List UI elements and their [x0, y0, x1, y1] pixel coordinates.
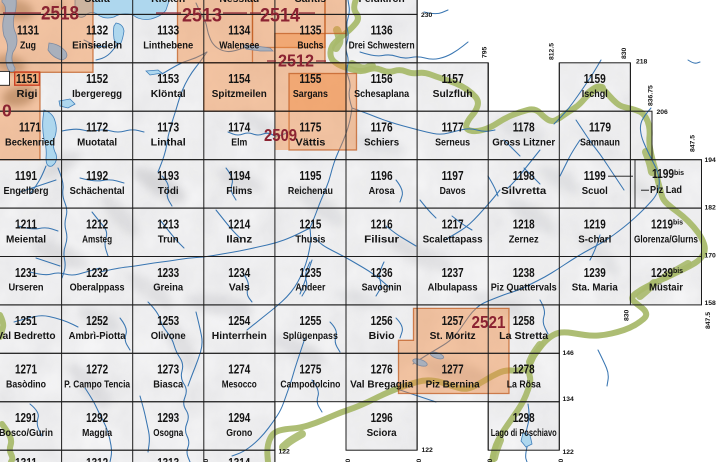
svg-text:1214: 1214: [228, 217, 250, 231]
svg-text:1313: 1313: [157, 456, 179, 462]
svg-text:Tödi: Tödi: [158, 186, 179, 197]
svg-text:1234: 1234: [228, 266, 250, 280]
svg-text:1314: 1314: [228, 456, 250, 462]
svg-text:1157: 1157: [442, 72, 464, 86]
svg-text:Biasca: Biasca: [153, 380, 183, 391]
svg-text:Müstair: Müstair: [649, 283, 683, 294]
svg-text:1233: 1233: [157, 266, 179, 280]
svg-text:1271: 1271: [15, 363, 37, 377]
svg-text:Greina: Greina: [153, 283, 183, 294]
svg-text:836.75: 836.75: [648, 85, 655, 106]
svg-text:206: 206: [657, 109, 669, 116]
svg-text:1154: 1154: [228, 72, 250, 86]
svg-text:Bosco/Gurin: Bosco/Gurin: [0, 428, 53, 439]
svg-text:Ricken: Ricken: [151, 0, 185, 5]
svg-text:1237: 1237: [442, 266, 464, 280]
svg-text:1156: 1156: [371, 72, 393, 86]
svg-text:Arosa: Arosa: [369, 186, 395, 197]
svg-text:1296: 1296: [371, 411, 393, 425]
svg-text:Osogna: Osogna: [153, 428, 183, 439]
svg-text:Glorenza/Glurns: Glorenza/Glurns: [634, 234, 698, 245]
svg-text:Thusis: Thusis: [295, 234, 325, 245]
svg-text:1235: 1235: [299, 266, 321, 280]
svg-text:1153: 1153: [157, 72, 179, 86]
svg-text:Campodolcino: Campodolcino: [280, 380, 340, 391]
svg-text:Bivio: Bivio: [369, 331, 395, 342]
svg-text:Piz Lad: Piz Lad: [650, 185, 682, 196]
svg-text:1232: 1232: [86, 266, 108, 280]
svg-text:Silvretta: Silvretta: [501, 186, 546, 197]
svg-text:Sciora: Sciora: [367, 428, 397, 439]
svg-text:Serneus: Serneus: [435, 137, 470, 148]
svg-text:Ischgl: Ischgl: [582, 89, 608, 100]
svg-text:1275: 1275: [299, 363, 321, 377]
svg-text:2521: 2521: [472, 312, 506, 332]
svg-text:Davos: Davos: [440, 186, 466, 197]
svg-text:Flims: Flims: [226, 186, 252, 197]
svg-text:1192: 1192: [86, 169, 108, 183]
svg-text:2514: 2514: [260, 5, 300, 27]
svg-text:1193: 1193: [157, 169, 179, 183]
svg-text:Scuol: Scuol: [582, 186, 608, 197]
svg-text:Vättis: Vättis: [295, 137, 325, 148]
svg-text:1215: 1215: [299, 217, 321, 231]
svg-text:1199: 1199: [584, 169, 606, 183]
svg-text:1213: 1213: [157, 217, 179, 231]
svg-text:Ambrì-Piotta: Ambrì-Piotta: [69, 331, 126, 342]
svg-text:1239: 1239: [584, 266, 606, 280]
svg-text:Samnaun: Samnaun: [580, 137, 620, 148]
svg-text:Filisur: Filisur: [364, 234, 399, 245]
svg-text:P. Campo Tencia: P. Campo Tencia: [64, 380, 130, 391]
svg-text:Rigi: Rigi: [17, 89, 38, 100]
svg-text:Schächental: Schächental: [70, 186, 125, 197]
svg-text:La Rösa: La Rösa: [507, 380, 541, 391]
svg-text:Nesslau: Nesslau: [219, 0, 259, 5]
svg-text:1255: 1255: [299, 314, 321, 328]
svg-text:2518: 2518: [41, 3, 79, 25]
svg-text:847.5: 847.5: [705, 312, 712, 329]
svg-text:1216: 1216: [371, 217, 393, 231]
svg-text:134: 134: [563, 396, 575, 403]
svg-text:Meiental: Meiental: [6, 234, 46, 245]
svg-text:Sulzfluh: Sulzfluh: [433, 89, 473, 100]
svg-text:Grono: Grono: [226, 428, 252, 439]
svg-text:Maggia: Maggia: [82, 428, 112, 439]
svg-text:1293: 1293: [157, 411, 179, 425]
svg-text:bis: bis: [674, 170, 684, 177]
svg-text:2513: 2513: [182, 5, 222, 27]
svg-text:Schesaplana: Schesaplana: [354, 89, 409, 100]
svg-text:170: 170: [705, 253, 716, 260]
svg-text:Piz Bernina: Piz Bernina: [426, 380, 480, 391]
svg-text:1239: 1239: [651, 266, 673, 280]
svg-text:1292: 1292: [86, 411, 108, 425]
svg-text:La Stretta: La Stretta: [499, 331, 548, 342]
svg-text:1256: 1256: [371, 314, 393, 328]
svg-text:S-charl: S-charl: [578, 234, 611, 245]
svg-text:Lago di Poschiavo: Lago di Poschiavo: [491, 428, 557, 439]
svg-text:Andeer: Andeer: [295, 283, 325, 294]
svg-text:Amsteg: Amsteg: [82, 234, 112, 245]
svg-text:1191: 1191: [15, 169, 37, 183]
svg-text:Linthal: Linthal: [151, 137, 186, 148]
svg-text:Oberalppass: Oberalppass: [70, 283, 125, 294]
svg-text:1218: 1218: [513, 217, 535, 231]
svg-text:bis: bis: [673, 268, 683, 275]
svg-text:Reichenau: Reichenau: [288, 186, 333, 197]
svg-text:830: 830: [558, 458, 565, 462]
svg-text:1159: 1159: [584, 72, 606, 86]
svg-text:Beckenried: Beckenried: [5, 137, 55, 148]
svg-text:1258: 1258: [513, 314, 535, 328]
svg-text:1274: 1274: [228, 363, 250, 377]
svg-text:122: 122: [422, 447, 434, 454]
svg-text:Engelberg: Engelberg: [4, 186, 49, 197]
svg-text:Val Bregaglia: Val Bregaglia: [350, 380, 413, 391]
svg-text:Trun: Trun: [158, 234, 179, 245]
svg-text:1196: 1196: [371, 169, 393, 183]
svg-text:847.5: 847.5: [690, 135, 697, 152]
svg-text:158: 158: [705, 300, 716, 307]
svg-text:Albulapass: Albulapass: [428, 283, 478, 294]
svg-text:Linthebene: Linthebene: [143, 41, 193, 52]
svg-text:Muotatal: Muotatal: [77, 137, 117, 148]
svg-text:1272: 1272: [86, 363, 108, 377]
svg-text:1257: 1257: [442, 314, 464, 328]
svg-text:Stäfa: Stäfa: [84, 0, 110, 5]
svg-text:Walensee: Walensee: [219, 41, 259, 52]
svg-text:122: 122: [563, 449, 575, 456]
svg-text:Basòdino: Basòdino: [6, 380, 46, 391]
svg-text:Vals: Vals: [229, 283, 250, 294]
svg-text:830: 830: [621, 47, 628, 59]
svg-text:1291: 1291: [15, 411, 37, 425]
svg-text:Val Bedretto: Val Bedretto: [0, 331, 56, 342]
svg-text:Hinterrhein: Hinterrhein: [212, 331, 267, 342]
svg-text:1219: 1219: [584, 217, 606, 231]
svg-text:1276: 1276: [371, 363, 393, 377]
svg-text:Urseren: Urseren: [9, 283, 44, 294]
svg-text:1197: 1197: [442, 169, 464, 183]
svg-text:Ilanz: Ilanz: [226, 234, 252, 245]
svg-text:1198: 1198: [513, 169, 535, 183]
svg-text:1278: 1278: [513, 363, 535, 377]
svg-text:146: 146: [563, 350, 575, 357]
svg-text:1152: 1152: [86, 72, 108, 86]
svg-text:830: 830: [487, 458, 494, 462]
svg-text:Einsiedeln: Einsiedeln: [72, 41, 122, 52]
svg-text:2509: 2509: [264, 125, 297, 145]
svg-text:bis: bis: [673, 220, 683, 227]
svg-text:1251: 1251: [15, 314, 37, 328]
svg-text:1195: 1195: [299, 169, 321, 183]
svg-text:1133: 1133: [157, 24, 179, 38]
svg-text:Sargans: Sargans: [293, 89, 328, 100]
svg-text:0: 0: [2, 101, 12, 121]
svg-text:Olivone: Olivone: [151, 331, 186, 342]
svg-text:1175: 1175: [299, 121, 321, 135]
svg-text:1172: 1172: [86, 121, 108, 135]
svg-text:230: 230: [421, 12, 433, 19]
svg-text:1231: 1231: [15, 266, 37, 280]
svg-text:Savognin: Savognin: [362, 283, 402, 294]
svg-text:Elm: Elm: [231, 137, 247, 148]
svg-text:1298: 1298: [513, 411, 535, 425]
svg-text:1131: 1131: [17, 24, 39, 38]
svg-text:Sta. Maria: Sta. Maria: [572, 283, 618, 294]
svg-text:218: 218: [636, 59, 648, 66]
svg-text:830: 830: [203, 458, 210, 462]
svg-text:122: 122: [279, 449, 291, 456]
svg-text:1311: 1311: [15, 456, 37, 462]
svg-text:182: 182: [705, 205, 716, 212]
svg-text:1199: 1199: [652, 167, 674, 181]
svg-text:1151: 1151: [16, 72, 38, 86]
svg-text:1176: 1176: [371, 121, 393, 135]
svg-text:Schiers: Schiers: [364, 137, 399, 148]
svg-text:1253: 1253: [157, 314, 179, 328]
svg-text:Gross Litzner: Gross Litzner: [492, 137, 555, 148]
svg-text:Feldkirch: Feldkirch: [358, 0, 404, 5]
svg-text:1179: 1179: [589, 121, 611, 135]
svg-text:1177: 1177: [442, 121, 464, 135]
svg-text:Scalettapass: Scalettapass: [423, 234, 483, 245]
svg-text:1294: 1294: [228, 411, 250, 425]
svg-text:Piz Quattervals: Piz Quattervals: [491, 283, 557, 294]
svg-text:Spitzmeilen: Spitzmeilen: [212, 89, 267, 100]
svg-text:Klöntal: Klöntal: [151, 89, 186, 100]
svg-text:1219: 1219: [651, 217, 673, 231]
svg-text:Zernez: Zernez: [509, 234, 539, 245]
svg-text:Ibergeregg: Ibergeregg: [72, 89, 122, 100]
svg-text:830: 830: [624, 309, 631, 321]
svg-text:1178: 1178: [513, 121, 535, 135]
svg-text:Drei Schwestern: Drei Schwestern: [349, 41, 415, 52]
svg-text:Zug: Zug: [20, 41, 36, 52]
svg-text:1212: 1212: [86, 217, 108, 231]
svg-text:St. Moritz: St. Moritz: [430, 331, 476, 342]
svg-text:1238: 1238: [513, 266, 535, 280]
svg-text:1273: 1273: [157, 363, 179, 377]
svg-text:1132: 1132: [86, 24, 108, 38]
svg-text:1254: 1254: [228, 314, 250, 328]
svg-text:830: 830: [416, 458, 423, 462]
svg-text:1173: 1173: [157, 121, 179, 135]
svg-text:1252: 1252: [86, 314, 108, 328]
svg-text:1217: 1217: [442, 217, 464, 231]
svg-text:1136: 1136: [371, 24, 393, 38]
svg-text:1236: 1236: [371, 266, 393, 280]
svg-text:812.5: 812.5: [549, 43, 556, 60]
svg-text:1312: 1312: [86, 456, 108, 462]
svg-text:Splügenpass: Splügenpass: [283, 331, 338, 342]
svg-text:194: 194: [705, 157, 716, 164]
svg-text:1134: 1134: [228, 24, 250, 38]
svg-text:1211: 1211: [15, 217, 37, 231]
svg-text:1155: 1155: [299, 72, 321, 86]
svg-text:Mesocco: Mesocco: [222, 380, 257, 391]
svg-text:1171: 1171: [19, 121, 41, 135]
svg-text:795: 795: [482, 46, 489, 58]
svg-text:1194: 1194: [228, 169, 250, 183]
svg-text:1174: 1174: [228, 121, 250, 135]
svg-text:1135: 1135: [299, 24, 321, 38]
svg-text:830: 830: [345, 458, 352, 462]
svg-text:1277: 1277: [442, 363, 464, 377]
svg-text:2512: 2512: [278, 51, 314, 71]
